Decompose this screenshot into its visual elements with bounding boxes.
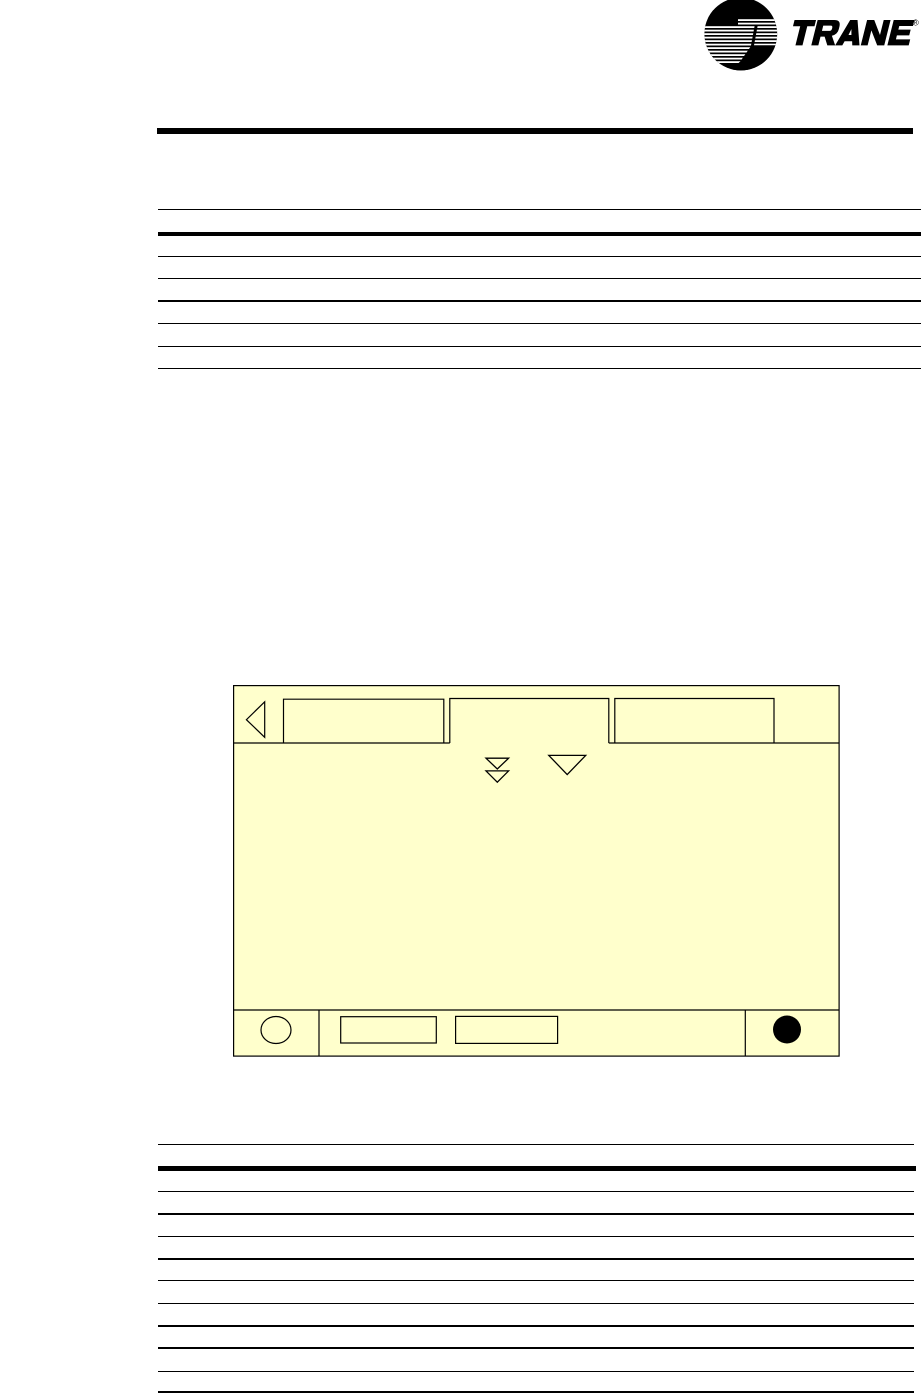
svg-text:®: ® [913, 18, 920, 28]
